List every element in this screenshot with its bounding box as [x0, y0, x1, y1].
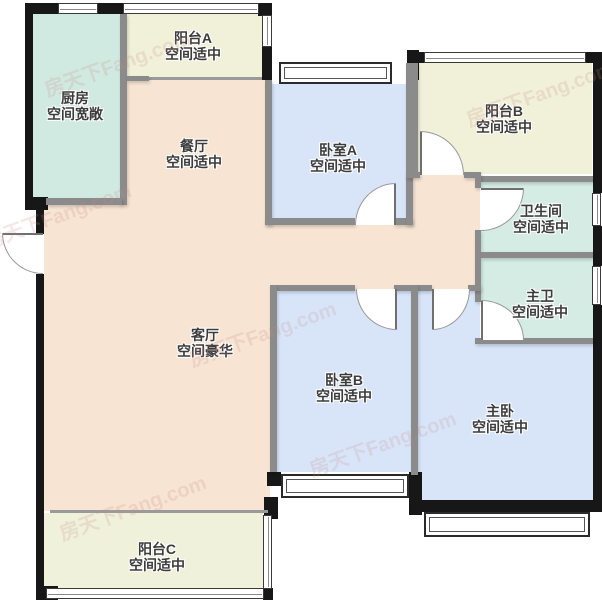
interior-wall: [127, 76, 149, 81]
interior-wall: [411, 285, 418, 475]
exterior-wall: [267, 472, 281, 486]
room-desc: 空间适中: [476, 119, 532, 135]
room-name: 卫生间: [513, 203, 569, 219]
room-name: 厨房: [47, 90, 103, 106]
label-bedroom-a: 卧室A 空间适中: [310, 142, 366, 174]
interior-wall: [270, 285, 277, 472]
interior-wall: [265, 80, 272, 225]
room-name: 主卧: [472, 403, 528, 419]
room-desc: 空间豪华: [177, 343, 233, 359]
balcony-b-door-leaf: [420, 132, 422, 175]
hallway-upper: [413, 174, 480, 291]
interior-wall: [475, 174, 481, 188]
room-name: 阳台C: [129, 541, 185, 557]
label-balcony-a: 阳台A 空间适中: [165, 30, 221, 62]
room-desc: 空间适中: [129, 557, 185, 573]
interior-wall: [277, 285, 355, 291]
master-bath-door-leaf: [481, 301, 483, 340]
room-name: 阳台A: [165, 30, 221, 46]
label-bathroom: 卫生间 空间适中: [513, 203, 569, 235]
room-name: 餐厅: [166, 138, 222, 154]
room-name: 卧室B: [316, 372, 372, 388]
exterior-wall: [415, 500, 595, 512]
exterior-wall: [407, 52, 425, 63]
label-master-bath: 主卫 空间适中: [512, 288, 568, 320]
label-balcony-c: 阳台C 空间适中: [129, 541, 185, 573]
room-desc: 空间适中: [165, 46, 221, 62]
exterior-wall: [263, 588, 273, 600]
exterior-wall: [262, 46, 272, 80]
bedroom-a-door-leaf: [394, 184, 396, 225]
room-name: 主卫: [512, 288, 568, 304]
window: [46, 588, 264, 599]
room-living: [44, 198, 270, 511]
window: [592, 193, 601, 226]
bay-window: [281, 474, 409, 498]
label-kitchen: 厨房 空间宽敞: [47, 90, 103, 122]
interior-wall: [475, 258, 481, 302]
interior-wall: [406, 175, 413, 225]
room-desc: 空间适中: [316, 388, 372, 404]
interior-wall: [46, 198, 122, 205]
bedroom-b-door-leaf: [395, 289, 397, 329]
window: [123, 3, 259, 14]
sliding-door-line: [50, 510, 268, 513]
room-desc: 空间适中: [512, 304, 568, 320]
room-name: 卧室A: [310, 142, 366, 158]
exterior-wall: [36, 274, 44, 514]
exterior-wall: [593, 226, 602, 266]
room-name: 客厅: [177, 327, 233, 343]
label-balcony-b: 阳台B 空间适中: [476, 103, 532, 135]
interior-wall: [481, 252, 593, 258]
room-desc: 空间适中: [310, 158, 366, 174]
room-desc: 空间适中: [472, 419, 528, 435]
entry-door-leaf: [3, 233, 43, 235]
room-desc: 空间适中: [513, 219, 569, 235]
master-bedroom-door-leaf: [432, 289, 434, 329]
label-dining: 餐厅 空间适中: [166, 138, 222, 170]
exterior-wall: [36, 514, 44, 594]
exterior-wall: [593, 305, 602, 512]
interior-wall: [406, 172, 420, 178]
room-desc: 空间适中: [166, 154, 222, 170]
exterior-wall: [25, 3, 33, 206]
bay-window: [424, 512, 590, 537]
label-bedroom-b: 卧室B 空间适中: [316, 372, 372, 404]
window: [262, 15, 272, 47]
exterior-wall: [36, 205, 44, 234]
floor-plan: 厨房 空间宽敞 阳台A 空间适中 餐厅 空间适中 卧室A 空间适中 阳台B 空间…: [0, 0, 602, 600]
interior-wall: [406, 63, 418, 175]
entry-door-arc: [2, 233, 43, 274]
window: [424, 52, 586, 63]
label-master-bedroom: 主卧 空间适中: [472, 403, 528, 435]
exterior-wall: [97, 3, 124, 14]
room-desc: 空间宽敞: [47, 106, 103, 122]
window: [58, 3, 98, 14]
exterior-wall: [593, 52, 602, 193]
interior-wall: [120, 14, 127, 205]
interior-wall: [481, 176, 593, 182]
window: [263, 515, 272, 589]
label-living: 客厅 空间豪华: [177, 327, 233, 359]
bay-window: [279, 62, 392, 84]
interior-wall: [265, 218, 355, 225]
window: [592, 266, 601, 305]
room-name: 阳台B: [476, 103, 532, 119]
bathroom-door-leaf: [481, 188, 523, 190]
